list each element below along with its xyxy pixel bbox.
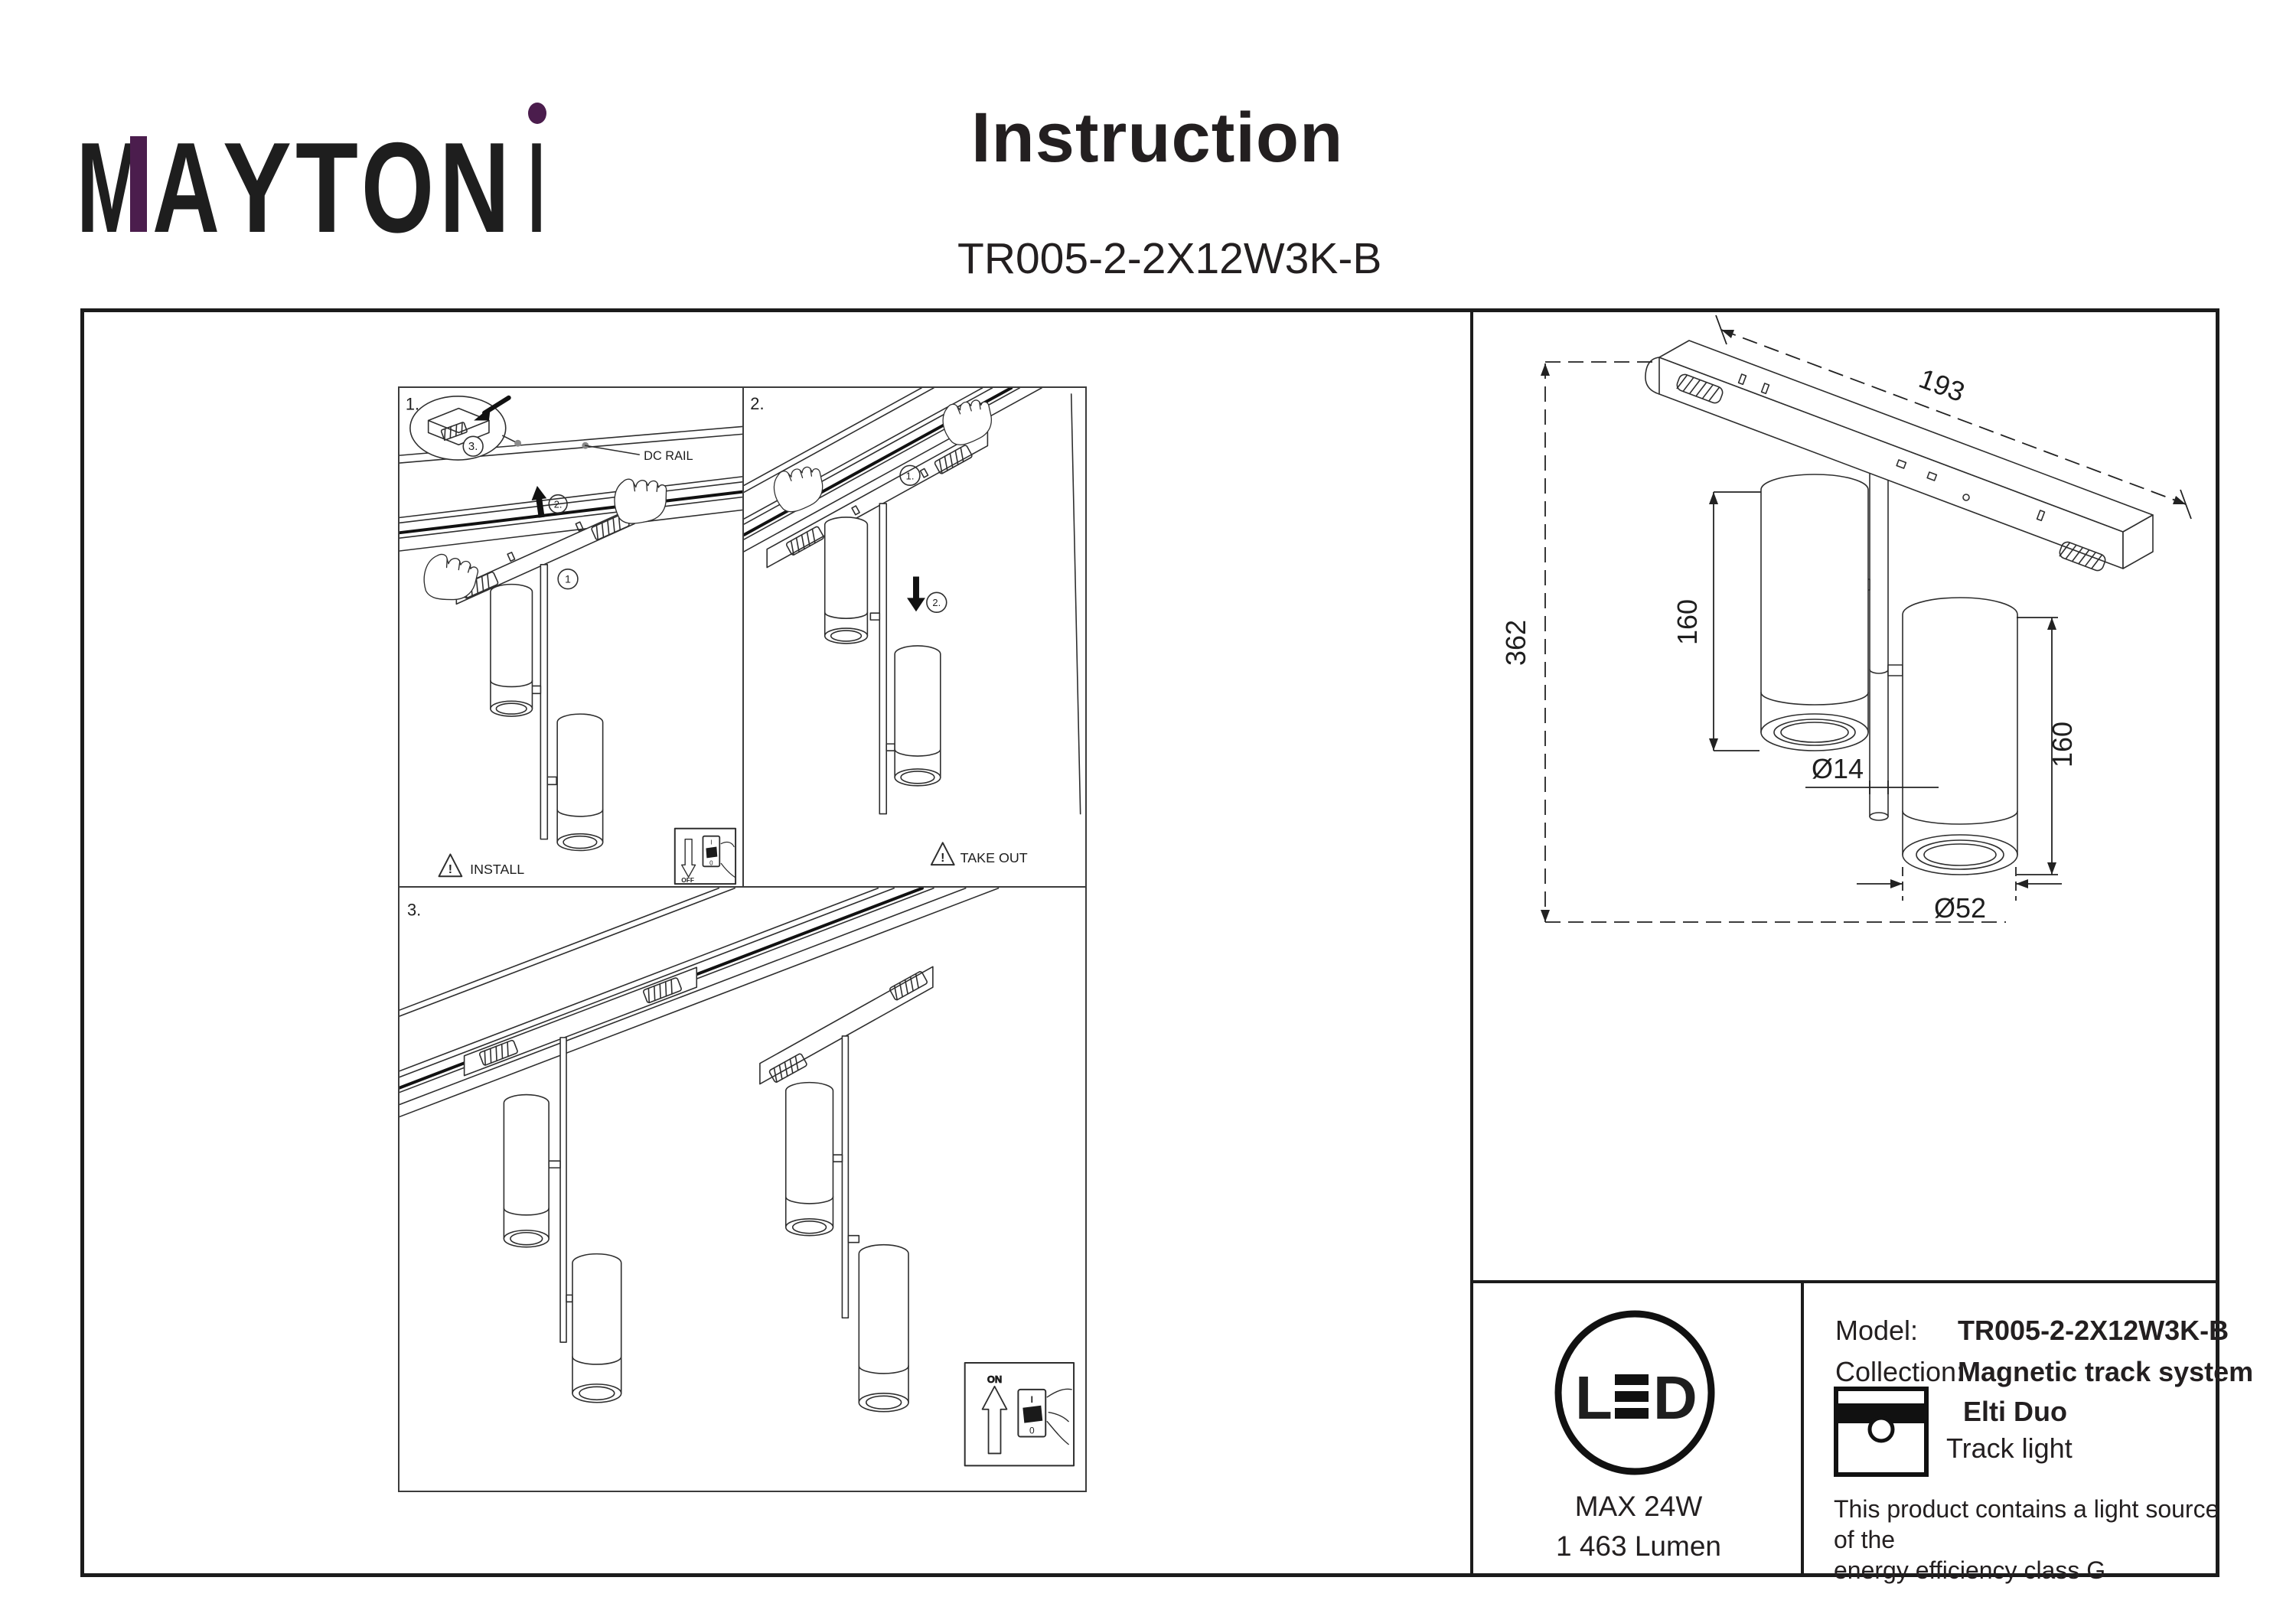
takeout-step-drawing: 2.	[744, 388, 1085, 886]
step-badge-label: 1.	[906, 470, 915, 481]
install-step-drawing: 3. DC RAIL 1.	[400, 388, 742, 886]
led-letter-d: D	[1653, 1364, 1698, 1432]
switch-on-label: ON	[987, 1374, 1002, 1385]
callout-detail	[410, 396, 509, 460]
result-step-drawing: 3.	[400, 888, 1085, 1491]
luminaire-drawing	[1761, 474, 2017, 875]
switch-off-label: OFF	[681, 876, 694, 884]
brand-letter: N	[439, 116, 510, 253]
dim-track-length: 193	[1915, 363, 1969, 409]
brand-logo: M A Y T O N I DECORATIVE LIGHTING	[77, 92, 597, 253]
luminaire-drawing	[825, 504, 941, 814]
max-power-label: MAX 24W	[1473, 1491, 1804, 1523]
rail-leader	[585, 445, 639, 455]
panel-caption: TAKE OUT	[960, 850, 1028, 865]
divider-horizontal-right-column	[1470, 1280, 2219, 1283]
brand-letter: Y	[223, 116, 292, 253]
result-step-panel: 3.	[398, 888, 1087, 1492]
dim-cylinder2-height: 160	[2047, 722, 2078, 768]
hand-icon	[769, 461, 830, 516]
arrow-down-icon	[907, 576, 925, 611]
switch-on-mark: I	[710, 839, 712, 846]
brand-letter: A	[152, 116, 220, 253]
collection-label: Collection:	[1835, 1356, 1950, 1388]
panel-step-number: 3.	[407, 901, 421, 920]
brand-letter: T	[295, 116, 358, 253]
switch-off-mark: 0	[1029, 1426, 1035, 1436]
efficiency-note-line1: This product contains a light source of …	[1834, 1494, 2220, 1555]
fixture-floating	[760, 966, 933, 1411]
dim-cylinder-diameter: Ø52	[1934, 892, 1986, 924]
callout-dot	[514, 440, 521, 447]
item-badge-label: 1	[565, 573, 571, 585]
model-row: Model: TR005-2-2X12W3K-B	[1835, 1315, 2229, 1347]
track-drawing	[1645, 341, 2153, 572]
switch-off-mark: 0	[709, 859, 713, 866]
led-letter-e-bar	[1615, 1408, 1649, 1419]
type-name: Track light	[1946, 1432, 2073, 1465]
model-label: Model:	[1835, 1315, 1950, 1347]
brand-letter: I	[528, 116, 545, 253]
warning-mark: !	[941, 852, 944, 865]
dc-rail-drawing	[400, 888, 999, 1117]
page-model-code: TR005-2-2X12W3K-B	[957, 233, 1381, 284]
panel-step-number: 1.	[406, 395, 419, 414]
callout-step-badge: 3.	[468, 441, 478, 453]
collection-row: Collection: Magnetic track system	[1835, 1356, 2253, 1388]
panel-step-number: 2.	[750, 394, 764, 413]
callout-leader	[503, 435, 517, 442]
dimension-drawing: 362 193 160 160 Ø14 Ø52	[1470, 310, 2219, 1280]
dim-cylinder1-height: 160	[1671, 599, 1703, 645]
brand-accent-bar	[130, 136, 147, 232]
brand-tagline: DECORATIVE LIGHTING	[300, 249, 550, 253]
panel-caption: INSTALL	[470, 862, 524, 877]
brand-letter: O	[361, 116, 434, 253]
led-letter-e-bar	[1615, 1374, 1649, 1385]
warning-mark: !	[448, 863, 452, 876]
brand-accent-dot	[528, 103, 546, 124]
track-light-pictogram	[1834, 1387, 1929, 1477]
led-letter-l: L	[1575, 1364, 1613, 1432]
model-value: TR005-2-2X12W3K-B	[1958, 1315, 2229, 1346]
led-badge: L D	[1543, 1307, 1727, 1483]
rail-label: DC RAIL	[644, 449, 693, 463]
takeout-step-panel: 2.	[744, 386, 1087, 888]
power-on-icon	[965, 1363, 1074, 1465]
hand-icon	[613, 477, 669, 525]
efficiency-note-line2: energy efficiency class G	[1834, 1555, 2220, 1586]
page-title: Instruction	[971, 98, 1343, 178]
luminous-flux-label: 1 463 Lumen	[1473, 1530, 1804, 1563]
luminaire-drawing	[491, 565, 603, 851]
dim-total-height: 362	[1500, 620, 1531, 666]
led-letter-e-bar	[1615, 1391, 1649, 1402]
step-badge-label: 2.	[932, 597, 941, 608]
step-badge-label: 2.	[554, 499, 563, 510]
install-step-panel: 3. DC RAIL 1.	[398, 386, 744, 888]
collection-value: Magnetic track system	[1958, 1356, 2253, 1387]
efficiency-note: This product contains a light source of …	[1834, 1494, 2220, 1586]
switch-on-mark: I	[1031, 1394, 1033, 1405]
dim-stem-diameter: Ø14	[1812, 753, 1864, 784]
instruction-sheet: M A Y T O N I DECORATIVE LIGHTING Instru…	[0, 0, 2296, 1623]
series-name: Elti Duo	[1963, 1396, 2067, 1428]
